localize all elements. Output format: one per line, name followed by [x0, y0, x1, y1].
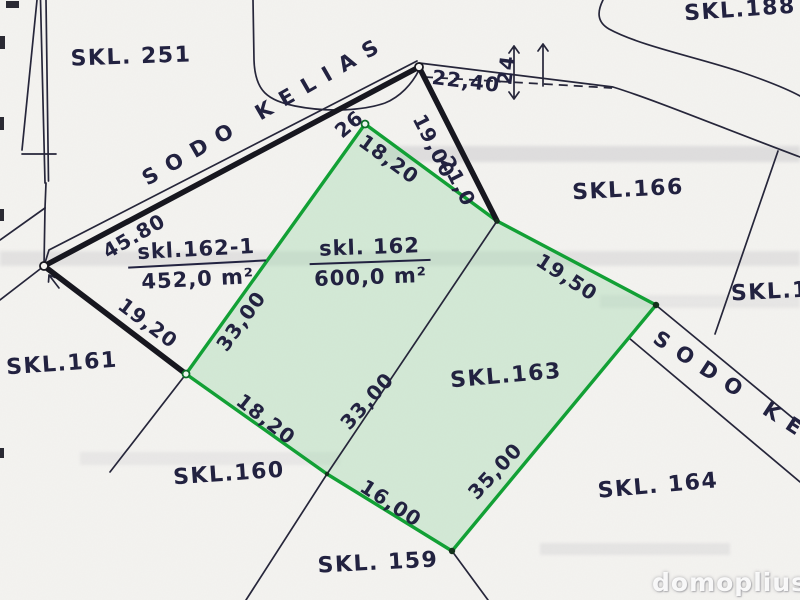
survey-point: [325, 472, 329, 476]
scan-artifact: [6, 1, 19, 8]
watermark: domoplius.lt: [652, 568, 800, 597]
plot-label-251: SKL. 251: [70, 42, 192, 71]
survey-point: [495, 219, 499, 223]
survey-point: [183, 371, 190, 378]
plot-162-area-block: skl. 162 600,0 m²: [309, 233, 432, 291]
plot-162-label: skl. 162: [309, 233, 431, 265]
scan-artifact: [0, 209, 4, 221]
plot-162-1-area-block: skl.162-1 452,0 m²: [127, 233, 267, 294]
scan-artifact: [0, 448, 4, 458]
measurement-road-width-tick: 24: [492, 54, 519, 87]
pole-stem: [45, 183, 46, 208]
plot-162-area: 600,0 m²: [310, 261, 432, 291]
survey-point: [40, 262, 48, 270]
survey-point: [449, 548, 455, 554]
plot-label-1xx: SKL.1: [730, 277, 800, 306]
survey-point: [653, 302, 659, 308]
junction-line-south: [44, 208, 45, 266]
survey-point: [415, 63, 423, 71]
cadastral-map: SODO KELIAS SODO KELIAS skl.162-1 452,0 …: [0, 0, 800, 600]
scan-artifact: [0, 117, 4, 130]
scan-artifact: [0, 36, 5, 49]
